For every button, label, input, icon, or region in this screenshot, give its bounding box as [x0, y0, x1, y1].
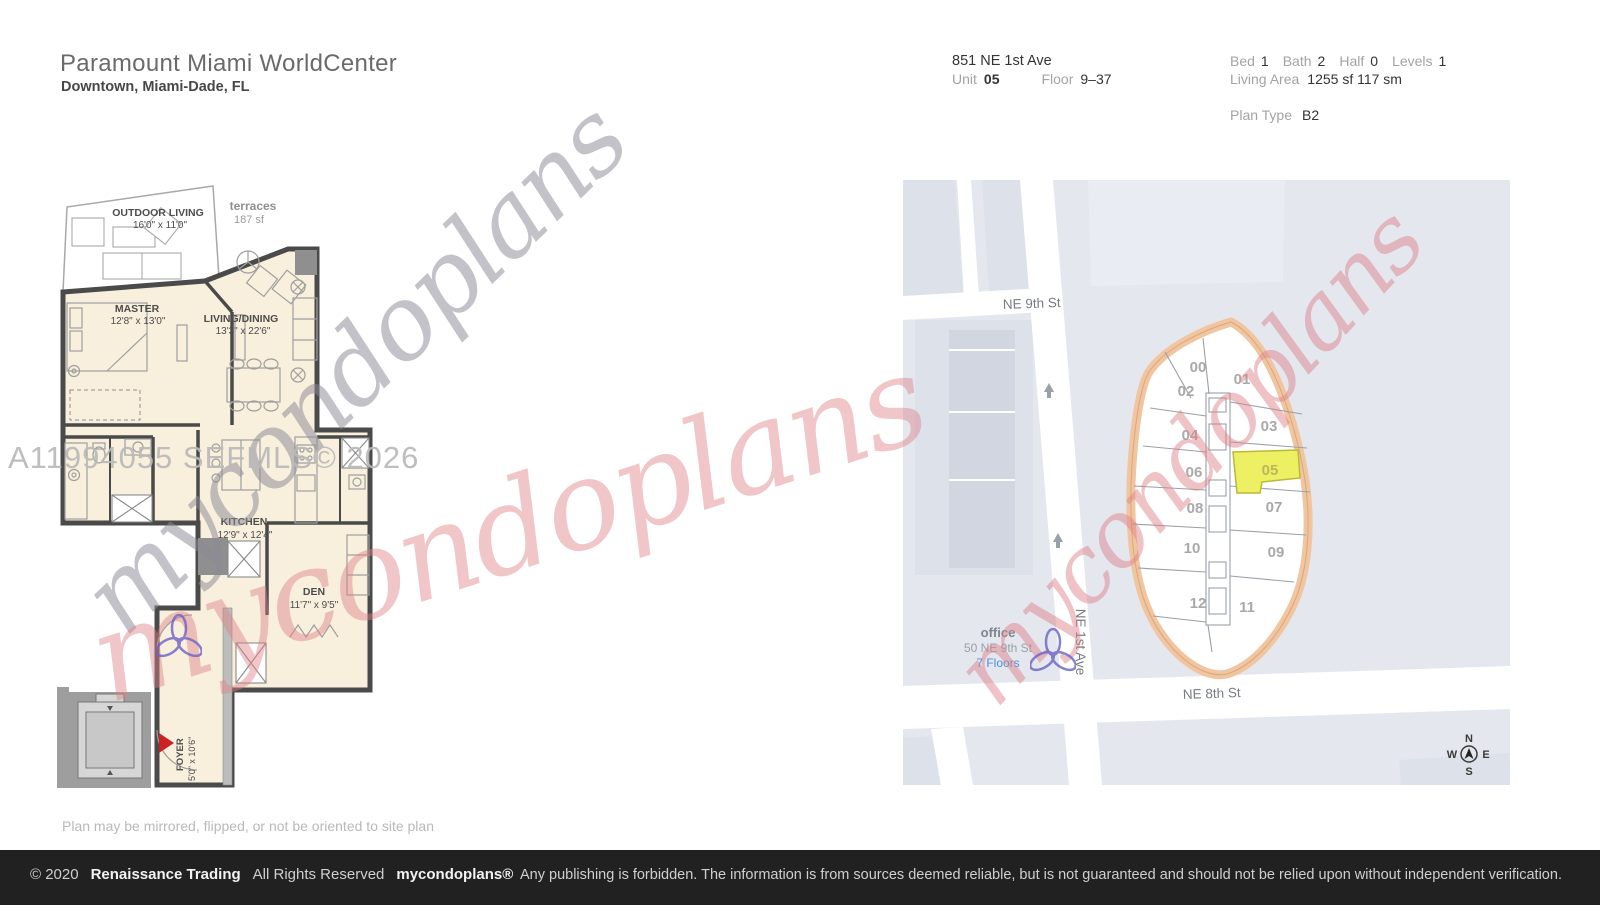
svg-text:terraces: terraces — [230, 199, 277, 213]
svg-text:06: 06 — [1186, 464, 1203, 481]
unit-label: Unit — [952, 71, 977, 87]
svg-text:08: 08 — [1187, 500, 1204, 517]
svg-text:187 sf: 187 sf — [234, 214, 265, 226]
svg-text:12'9" x 12'4": 12'9" x 12'4" — [218, 530, 273, 541]
plan-type-label: Plan Type — [1230, 107, 1292, 123]
svg-text:07: 07 — [1266, 499, 1283, 516]
floor-label: Floor — [1041, 71, 1073, 87]
svg-text:W: W — [1447, 749, 1458, 761]
svg-text:05: 05 — [1262, 462, 1279, 479]
svg-text:DEN: DEN — [303, 586, 325, 598]
office-address: 50 NE 9th St — [964, 641, 1033, 655]
svg-text:12'8" x 13'0": 12'8" x 13'0" — [111, 316, 166, 327]
svg-text:13'3" x 22'6": 13'3" x 22'6" — [216, 326, 271, 337]
site-map: NE 9th St NE 1st Ave NE 8th St office 50… — [903, 180, 1510, 785]
svg-text:KITCHEN: KITCHEN — [221, 516, 268, 528]
footer-disclaimer: Any publishing is forbidden. The informa… — [520, 867, 1562, 883]
corridor-wall — [223, 608, 232, 785]
svg-text:S: S — [1465, 766, 1472, 778]
footer-copyright: © 2020 Renaissance Trading All Rights Re… — [30, 866, 513, 883]
footer-brand: mycondoplans® — [396, 866, 513, 883]
bed-label: Bed — [1230, 53, 1255, 69]
svg-text:02: 02 — [1178, 383, 1195, 400]
svg-text:E: E — [1482, 749, 1489, 761]
storage-block — [198, 538, 228, 575]
floor-value: 9–37 — [1080, 71, 1111, 87]
svg-text:12: 12 — [1190, 595, 1207, 612]
svg-text:5'0" x 10'6": 5'0" x 10'6" — [187, 737, 197, 781]
living-area-value: 1255 sf 117 sm — [1307, 71, 1402, 87]
svg-text:04: 04 — [1182, 427, 1199, 444]
svg-text:10: 10 — [1184, 540, 1201, 557]
column-block — [295, 250, 317, 275]
plan-type-row: Plan Type B2 — [1230, 107, 1319, 123]
levels-value: 1 — [1439, 53, 1447, 69]
svg-text:09: 09 — [1268, 544, 1285, 561]
living-area-label: Living Area — [1230, 71, 1299, 87]
footer-rights: All Rights Reserved — [253, 866, 385, 883]
street-label-ne1: NE 1st Ave — [1073, 609, 1088, 676]
street-label-ne8: NE 8th St — [1183, 685, 1242, 702]
svg-text:01: 01 — [1234, 371, 1251, 388]
condo-plan-page: { "header": { "title": "Paramount Miami … — [0, 0, 1600, 922]
elevator — [57, 687, 151, 788]
levels-label: Levels — [1392, 53, 1432, 69]
plan-type-value: B2 — [1302, 107, 1319, 123]
stats-row: Bed 1 Bath 2 Half 0 Levels 1 — [1230, 53, 1446, 69]
svg-text:MASTER: MASTER — [115, 303, 160, 315]
svg-text:11'7" x 9'5": 11'7" x 9'5" — [290, 600, 339, 611]
page-location: Downtown, Miami-Dade, FL — [61, 79, 250, 95]
half-value: 0 — [1370, 53, 1378, 69]
unit-floor-row: Unit 05 Floor 9–37 — [952, 71, 1112, 87]
bed-value: 1 — [1261, 53, 1269, 69]
footer-year: © 2020 — [30, 866, 79, 883]
plan-disclaimer-note: Plan may be mirrored, flipped, or not be… — [62, 818, 434, 834]
svg-text:11: 11 — [1239, 599, 1255, 616]
office-building — [949, 330, 1015, 568]
svg-text:16'0" x 11'0": 16'0" x 11'0" — [133, 220, 188, 231]
svg-text:LIVING/DINING: LIVING/DINING — [204, 313, 279, 325]
office-floors-link: 7 Floors — [976, 656, 1019, 670]
floor-plan: OUTDOOR LIVING 16'0" x 11'0" terraces 18… — [55, 175, 385, 820]
svg-text:FOYER: FOYER — [175, 738, 186, 771]
svg-text:03: 03 — [1261, 418, 1278, 435]
bath-label: Bath — [1283, 53, 1312, 69]
bath-value: 2 — [1318, 53, 1326, 69]
svg-text:OUTDOOR LIVING: OUTDOOR LIVING — [112, 207, 204, 219]
footer-company: Renaissance Trading — [91, 866, 241, 883]
unit-value: 05 — [984, 71, 1000, 87]
svg-text:00: 00 — [1190, 359, 1207, 376]
svg-text:N: N — [1465, 733, 1473, 745]
living-area-row: Living Area 1255 sf 117 sm — [1230, 71, 1402, 87]
half-label: Half — [1339, 53, 1364, 69]
office-name: office — [981, 625, 1016, 640]
page-title: Paramount Miami WorldCenter — [60, 50, 397, 78]
building-address: 851 NE 1st Ave — [952, 53, 1052, 69]
street-label-ne9: NE 9th St — [1003, 295, 1062, 312]
